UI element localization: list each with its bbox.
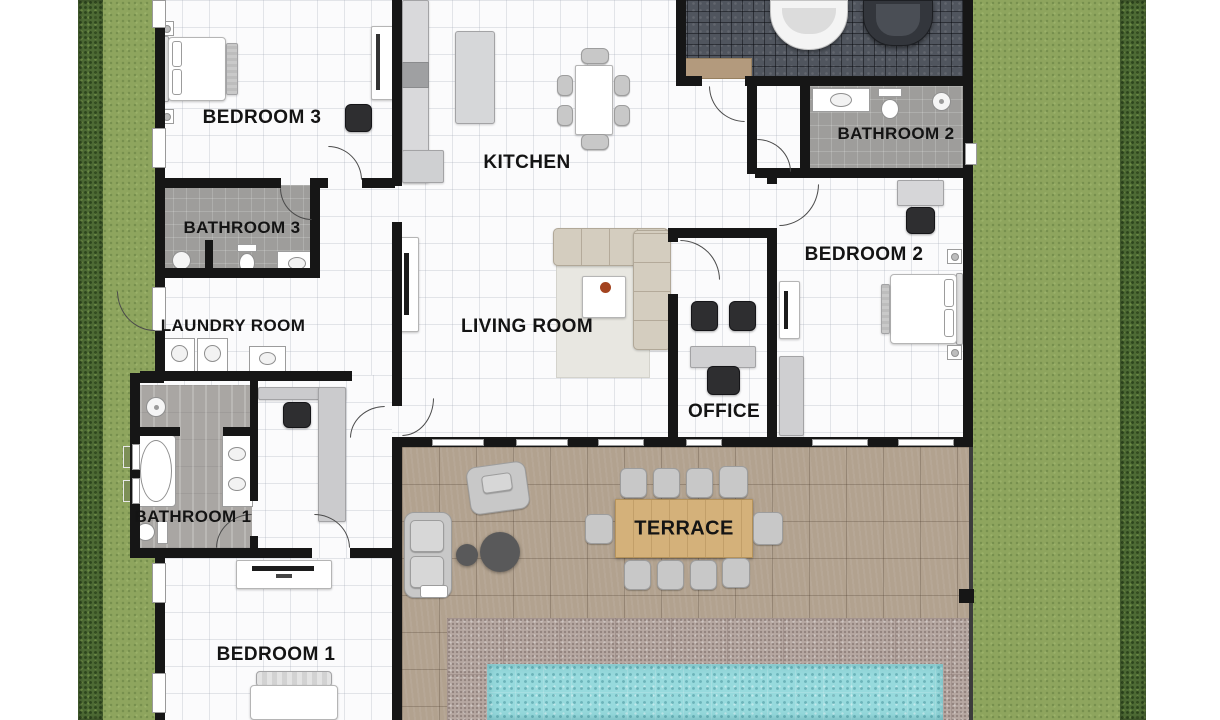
side-table-small: [456, 544, 478, 566]
wall: [745, 76, 973, 86]
dining-chair: [581, 134, 609, 150]
window: [516, 439, 568, 446]
terrace-chair: [624, 560, 651, 590]
shower-dot: [154, 405, 159, 410]
label-bathroom3: BATHROOM 3: [183, 218, 300, 238]
sconce-light: [951, 253, 959, 261]
window: [152, 0, 166, 28]
double-vanity-bathroom1: [222, 435, 253, 507]
office-chair: [691, 301, 718, 331]
kitchen-island: [455, 31, 495, 124]
dining-chair: [614, 105, 630, 126]
terrace-chair: [686, 468, 713, 498]
hedge-right: [1120, 0, 1146, 720]
dining-table: [575, 65, 613, 135]
window: [152, 128, 166, 168]
dining-chair: [557, 75, 573, 96]
wall: [223, 427, 252, 436]
terrace-chair: [620, 468, 647, 498]
label-office: OFFICE: [688, 401, 760, 423]
wall: [963, 0, 973, 447]
label-bathroom1: BATHROOM 1: [134, 507, 251, 527]
wall: [312, 178, 328, 188]
lounge-cushion: [410, 556, 444, 588]
bed2-headboard: [956, 273, 963, 345]
window: [686, 439, 722, 446]
sink: [228, 447, 246, 461]
label-living: LIVING ROOM: [461, 316, 593, 338]
terrace-chair: [585, 514, 613, 544]
label-kitchen: KITCHEN: [483, 152, 570, 174]
pillow: [944, 279, 954, 307]
window: [152, 563, 166, 603]
window: [812, 439, 868, 446]
wall: [767, 228, 777, 440]
sink: [228, 477, 246, 491]
deck-edge: [969, 447, 973, 720]
toilet-tank: [878, 88, 902, 97]
tv-base: [276, 574, 292, 578]
bed2-bench: [881, 284, 890, 334]
wall: [130, 548, 312, 558]
dining-chair: [581, 48, 609, 64]
pillow: [172, 69, 182, 95]
label-terrace: TERRACE: [634, 518, 733, 541]
car-dark-roof: [876, 4, 920, 36]
pillow: [172, 41, 182, 67]
wall: [800, 86, 810, 174]
washer-drum: [171, 345, 188, 362]
tv-bedroom2: [784, 291, 788, 329]
dining-chair: [614, 75, 630, 96]
wardrobe-right: [318, 387, 346, 522]
chair-bedroom3: [345, 104, 372, 132]
window: [965, 143, 977, 165]
wall: [140, 371, 352, 381]
wall: [392, 222, 402, 406]
office-desk: [690, 346, 756, 368]
wall: [350, 548, 395, 558]
closet-chair: [283, 402, 311, 428]
office-chair: [707, 366, 740, 395]
sink: [259, 352, 276, 365]
sink: [830, 93, 852, 107]
terrace-chair: [657, 560, 684, 590]
floor-plan: BEDROOM 3 KITCHEN BATHROOM 3 BATHROOM 2 …: [0, 0, 1220, 720]
office-chair: [729, 301, 756, 331]
wall: [676, 0, 686, 84]
window: [132, 478, 140, 504]
terrace-chair: [753, 512, 783, 545]
kitchen-counter-return: [402, 150, 444, 183]
chair-bedroom2: [906, 207, 935, 234]
label-bedroom1: BEDROOM 1: [217, 644, 336, 666]
wall: [392, 0, 402, 186]
wall: [676, 76, 702, 86]
hedge-left: [78, 0, 103, 720]
window: [152, 673, 166, 713]
sconce-light: [951, 349, 959, 357]
wall: [392, 437, 402, 720]
dining-chair: [557, 105, 573, 126]
double-bed-bedroom1: [250, 685, 338, 720]
window: [432, 439, 484, 446]
stove: [402, 62, 429, 88]
side-table-large: [480, 532, 520, 572]
window: [132, 444, 140, 470]
wall: [133, 427, 180, 436]
wall: [747, 84, 757, 174]
deck-post: [959, 589, 974, 603]
sofa-right-section: [633, 230, 671, 350]
terrace-chair: [653, 468, 680, 498]
toilet-tank: [237, 244, 257, 252]
tv-bedroom1: [252, 566, 314, 571]
label-laundry: LAUNDRY ROOM: [161, 316, 306, 336]
tv-console-bedroom2: [779, 281, 800, 339]
terrace-chair: [722, 558, 750, 588]
table-decor: [600, 282, 611, 293]
wardrobe-bedroom2: [779, 356, 804, 436]
terrace-chair: [719, 466, 748, 498]
window: [598, 439, 644, 446]
bathtub: [140, 440, 172, 502]
bed3-bench: [226, 43, 238, 95]
terrace-chair: [690, 560, 717, 590]
wall: [362, 178, 395, 188]
pillow: [944, 309, 954, 337]
wall: [668, 294, 678, 440]
wall: [668, 228, 777, 238]
label-bedroom2: BEDROOM 2: [805, 244, 924, 266]
wall: [155, 268, 320, 278]
desk-bedroom2: [897, 180, 944, 206]
label-bathroom2: BATHROOM 2: [837, 124, 954, 144]
wall: [155, 178, 281, 188]
shower-dot: [939, 99, 944, 104]
lounge-cushion: [410, 520, 444, 552]
dryer-drum: [204, 345, 221, 362]
swimming-pool: [487, 664, 943, 720]
window: [898, 439, 954, 446]
desk-items: [376, 34, 380, 90]
desk-bedroom3: [371, 26, 394, 100]
tv-living: [404, 253, 409, 315]
deck-bench: [420, 585, 448, 598]
wall: [250, 381, 258, 501]
label-bedroom3: BEDROOM 3: [203, 107, 322, 129]
toilet: [881, 99, 899, 119]
